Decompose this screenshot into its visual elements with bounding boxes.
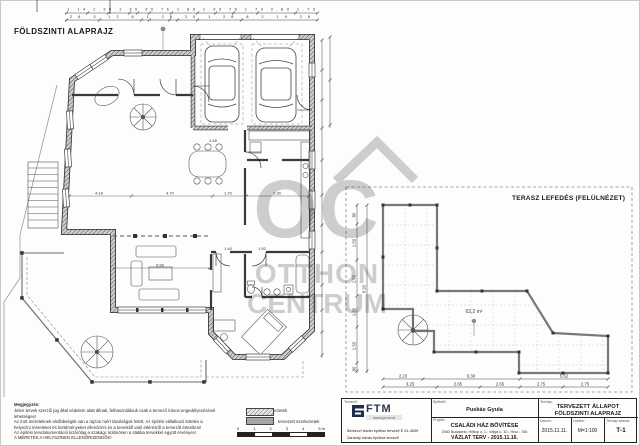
terrace-grid <box>380 200 610 375</box>
dim-label: 1.40 <box>224 246 233 251</box>
project-address: 2083 Budapest, Hilltop u. 1., Válya u. 1… <box>431 430 538 434</box>
dim-label: 3.25 <box>406 382 415 387</box>
scale-number: 1 <box>253 426 255 431</box>
terrace-outline <box>383 205 608 373</box>
title-block: Tervező: FTM management Berkeczi István … <box>341 398 637 443</box>
legend-planned-label: tervezett szerkezetek <box>278 419 319 424</box>
drawing-sheet: 1.14 1.30 1.30 30 76 1.88 1.93 76 1.73 2… <box>0 0 640 446</box>
top-dims-row1: 1.14 1.30 1.30 30 76 1.88 1.93 76 1.73 2… <box>67 7 316 12</box>
terrace-bottom-dims: 2.23 6.30 5.62 3.25 2.65 2.65 2.75 2.75 <box>382 374 610 389</box>
spiral-stair-interior <box>130 104 156 130</box>
car-1 <box>205 46 239 122</box>
terrace-area-marker: 63,2 m² <box>466 309 483 336</box>
scale-number: 4 <box>302 426 304 431</box>
gray-swatch <box>246 417 274 425</box>
dim-label: 5.62 <box>560 374 569 379</box>
designer-line-1: Berkeczi István építész tervező É 01-463… <box>347 429 418 433</box>
watermark: OC OTTHON CENTRUM <box>247 142 415 319</box>
spiral-stair-terrace-plan <box>398 315 428 345</box>
ftm-logo-text: FTM <box>366 403 392 415</box>
dim-label: 1.70 <box>224 191 233 196</box>
scale-number: 5 m <box>318 426 325 431</box>
scale-bar: 0 1 2 3 4 5 m <box>237 426 325 437</box>
dim-label: 2.23 <box>399 374 408 379</box>
scale-value: M=1:100 <box>571 428 604 434</box>
dim-label: 2.75 <box>537 382 546 387</box>
terrace-title: TERASZ LEFEDÉS (FELÜLNÉZET) <box>512 195 625 202</box>
car-2 <box>256 48 296 122</box>
plan-title: FÖLDSZINTI ALAPRAJZ <box>14 27 113 36</box>
date-value: 2015.11.11. <box>538 428 571 434</box>
sheetno-value: T-1 <box>604 427 638 434</box>
entry-marker <box>161 27 166 50</box>
dim-label: 2.65 <box>454 382 463 387</box>
sheet-name-line1: TERVEZETT ÁLLAPOT <box>538 404 638 410</box>
sheetno-label: Tervlap száma: <box>606 419 630 423</box>
terrace-sliding-door <box>118 307 206 313</box>
client-name: Puskás Gyula <box>431 407 538 413</box>
watermark-letters: OC <box>254 164 381 255</box>
dim-label: 2.65 <box>496 382 505 387</box>
scale-label: Lépték: <box>573 419 585 423</box>
titleblock-divider <box>431 417 538 418</box>
note-line: Jelen tervek szerzői jog által védelem a… <box>14 408 238 413</box>
dim-label: 4.18 <box>95 191 104 196</box>
sheet-name-line2: FÖLDSZINTI ALAPRAJZ <box>538 411 638 417</box>
drawing-canvas: 1.14 1.30 1.30 30 76 1.88 1.93 76 1.73 2… <box>0 0 640 446</box>
sofa-group <box>131 246 179 300</box>
dining-table <box>189 144 226 184</box>
scale-number: 0 <box>237 426 239 431</box>
designer-label: Tervező: <box>344 400 358 404</box>
terrace-area-label: 63,2 m² <box>466 309 483 315</box>
dim-label: 2.75 <box>581 382 590 387</box>
terrace-plan-box: 63,2 m² 2.23 6.30 5.62 3.25 2.65 2.65 2.… <box>346 187 632 392</box>
scale-number: 3 <box>286 426 288 431</box>
project-label: Projekt: <box>433 418 445 422</box>
scale-bar-segments <box>237 432 325 437</box>
notes-heading: Megjegyzés: <box>14 402 238 407</box>
ftm-logo-icon <box>352 405 364 417</box>
designer-line-2: Zarándy István építész tervező <box>347 436 399 440</box>
terrace-posts <box>382 204 610 375</box>
exterior-stairs <box>28 162 58 228</box>
dim-label: 6.30 <box>467 374 476 379</box>
beam-line <box>113 234 211 238</box>
scale-number: 2 <box>270 426 272 431</box>
project-phase: VÁZLAT TERV - 2015.11.16. <box>431 435 538 441</box>
dim-label: 2.48 <box>209 138 218 143</box>
dim-label: 5.95 <box>156 263 165 268</box>
top-dimension-chain: 1.14 1.30 1.30 30 76 1.88 1.93 76 1.73 2… <box>65 7 319 22</box>
dim-label: 4.70 <box>166 191 175 196</box>
client-label: Építtető: <box>433 400 446 404</box>
hatch-swatch <box>246 408 274 416</box>
top-dims-row2: 28 3.12 6 1.26 20 1.28 8 2.19 28 <box>70 14 311 19</box>
notes-block: Megjegyzés: Jelen tervek szerzői jog ált… <box>14 402 238 441</box>
garage <box>200 35 302 125</box>
spiral-stair-terrace <box>81 336 113 368</box>
watermark-line1: OTTHON <box>255 258 379 289</box>
property-line <box>4 85 57 397</box>
note-line: A MÉRETEK A HELYSZÍNEN ELLENŐRIZENDŐK! <box>14 435 238 440</box>
date-label: Dátum: <box>540 419 552 423</box>
dim-label: 1.50 <box>352 341 357 350</box>
dim-label: 80 <box>352 366 357 371</box>
closet <box>213 254 221 292</box>
ftm-logo-subtext: management <box>366 415 402 420</box>
project-name: CSALÁDI HÁZ BŐVÍTÉSE <box>431 423 538 429</box>
watermark-line2: CENTRUM <box>247 288 387 319</box>
